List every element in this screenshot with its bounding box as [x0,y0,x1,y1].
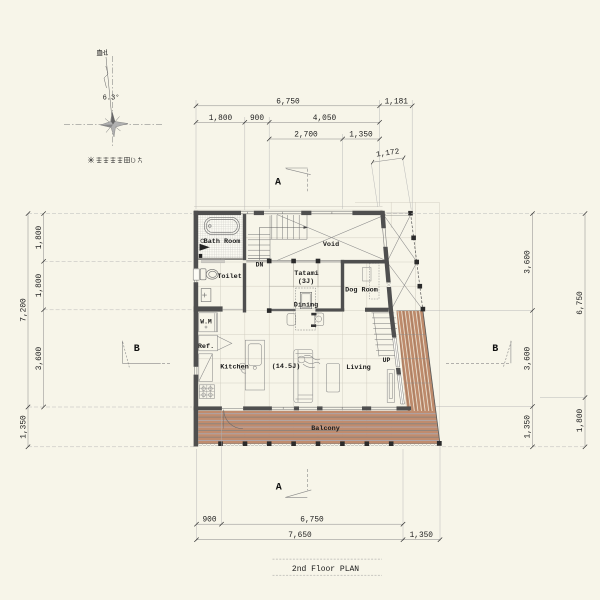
svg-text:900: 900 [202,517,216,525]
svg-text:(14.5J): (14.5J) [272,363,301,371]
svg-text:1,350: 1,350 [410,532,434,540]
svg-text:6,750: 6,750 [300,517,324,525]
svg-text:Dining: Dining [294,302,318,310]
svg-text:Balcony: Balcony [311,425,340,433]
svg-text:Living: Living [346,364,370,372]
svg-text:Ref.: Ref. [198,343,214,351]
svg-text:Toilet: Toilet [217,273,241,281]
svg-text:6,750: 6,750 [276,98,300,106]
svg-text:1,181: 1,181 [385,98,409,106]
svg-text:A: A [275,178,281,189]
svg-text:2,700: 2,700 [294,132,318,140]
svg-text:B: B [134,344,140,355]
svg-text:4,050: 4,050 [313,115,337,123]
svg-text:Bath Room: Bath Room [204,238,241,246]
svg-text:UP: UP [383,357,391,364]
svg-text:W.M: W.M [200,319,212,326]
svg-text:(3J): (3J) [298,278,314,286]
svg-text:1,800: 1,800 [209,115,233,123]
svg-text:7,650: 7,650 [288,532,312,540]
svg-text:6.3°: 6.3° [103,94,120,103]
svg-text:6,750: 6,750 [577,291,585,315]
svg-text:1,350: 1,350 [525,415,533,439]
svg-text:A: A [276,483,282,494]
svg-text:3,600: 3,600 [525,346,533,370]
svg-text:1,800: 1,800 [577,408,585,432]
svg-text:7,200: 7,200 [21,298,29,322]
svg-text:DN: DN [256,261,264,268]
svg-text:1,350: 1,350 [21,415,29,439]
svg-text:Dog Room: Dog Room [345,286,378,294]
svg-text:Tatami: Tatami [294,270,318,278]
svg-text:1,350: 1,350 [349,132,373,140]
svg-text:3,600: 3,600 [36,346,44,370]
svg-text:1,800: 1,800 [36,273,44,297]
svg-text:3,600: 3,600 [525,250,533,274]
svg-text:1,800: 1,800 [36,225,44,249]
svg-text:B: B [492,344,498,355]
svg-text:2nd Floor PLAN: 2nd Floor PLAN [292,565,359,574]
svg-text:900: 900 [250,115,264,123]
svg-text:Void: Void [323,241,339,249]
svg-text:Kitchen: Kitchen [220,363,249,371]
